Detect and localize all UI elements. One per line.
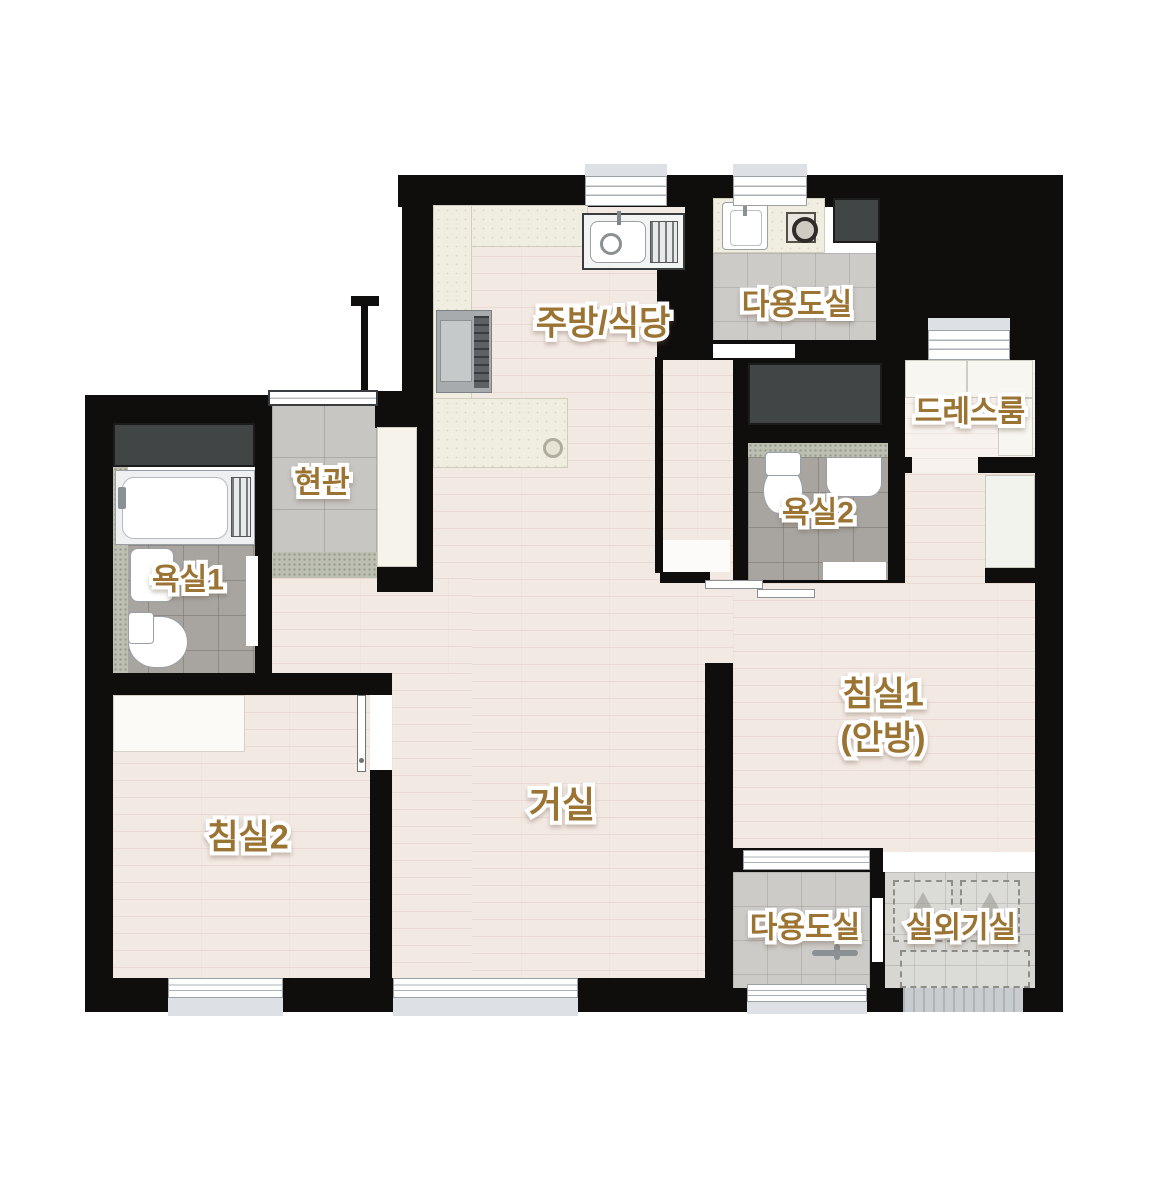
stove-grill [474,316,489,388]
kitchen-sink-drain-icon [600,233,622,255]
wall-utility-top-left-a [685,207,713,270]
kitchen-counter-lower [433,398,568,468]
closet-bedroom1 [985,475,1035,568]
closet-bedroom2 [113,695,245,752]
label-bathroom2: 욕실2 [782,497,854,530]
shoe-cabinet [377,427,417,567]
washer-drum-icon [792,217,818,243]
door-bathroom2-opening [823,562,886,580]
label-utility-top: 다용도실 [742,289,852,322]
label-entrance: 현관 [294,467,349,500]
label-bedroom1-line1: 침실1 [842,676,923,713]
stove-inner [440,320,472,382]
dark-panel-bathroom2-top [748,363,882,425]
window-bedroom1-utility [743,850,870,870]
bathroom2-sink [826,457,882,497]
wardrobe-dressroom-1 [905,360,967,398]
wall-corridor-thin [655,357,663,573]
wall-entrance-right-bottom [377,567,433,592]
window-living [393,978,578,998]
window-utility-bottom [747,984,867,1002]
label-bathroom1: 욕실1 [152,564,224,597]
kitchen-faucet-icon [617,211,621,225]
floor-plan: 주방/식당 다용도실 드레스룸 현관 욕실1 욕실2 침실1 (안방) 거실 침… [0,0,1160,1200]
wall-bedroom2-top [85,673,392,695]
wall-dressroom-bottom-b [978,457,1037,473]
floor-entrance-granite [272,552,377,578]
sill-dressroom-window [928,318,1010,330]
wardrobe-dressroom-2 [967,360,1033,398]
wall-bedroom2-right [370,770,392,978]
window-kitchen [585,176,667,206]
wall-left [85,395,113,1012]
kitchen-dish-rack [650,221,678,263]
sill-living-window [393,998,578,1016]
sill-kitchen-window [585,164,667,176]
ac-dashed-zone [900,950,1030,988]
label-kitchen-dining: 주방/식당 [536,305,671,342]
window-utility-top [733,176,807,206]
wall-entry-post [361,298,368,393]
floor-hall-upper [272,578,472,673]
sliding-door-bedroom1-a [705,580,763,589]
wall-dressroom-bottom-a [900,457,912,473]
label-bedroom1-line2: (안방) [840,720,925,757]
label-living: 거실 [529,785,595,825]
door-bathroom1-opening [246,556,258,646]
door-ac-room-opening [872,898,883,962]
floor-drain-icon [543,438,563,458]
wall-living-bedroom1 [705,663,733,1012]
bathtub-basin [122,477,228,539]
wall-closet-stub [985,568,1037,583]
door-bedroom2-handle-icon [359,758,364,763]
bathtub-faucet-icon [118,487,126,509]
window-dressroom [928,330,1010,360]
entrance-door [268,390,378,406]
window-bedroom2 [168,978,283,998]
dark-panel-utility-top [833,198,880,243]
floor-bedroom1 [733,583,1035,852]
label-utility-bottom: 다용도실 [750,912,860,945]
utility-faucet-stem-icon [834,944,840,960]
bathroom2-toilet-tank [765,452,801,476]
louver-ac-room [903,988,1023,1012]
wall-entrance-right-top [375,391,405,428]
sill-bedroom2-window [168,998,283,1016]
label-ac-room: 실외기실 [906,912,1016,945]
label-bedroom2: 침실2 [207,819,288,856]
wall-bathroom1-top [85,395,272,423]
wall-right [1035,360,1063,1012]
sliding-door-bedroom1-b [757,589,815,598]
label-dressroom: 드레스룸 [915,396,1025,429]
bathtub-shelf [231,477,251,537]
floor-hall-lower [392,673,472,980]
sill-utility-window [733,164,807,176]
sill-utility-bottom-window [747,1002,867,1014]
dark-panel-bathroom1-window-box [113,423,255,467]
bathroom1-toilet-tank [128,612,154,644]
wall-entry-post-cap [351,296,379,306]
door-utility-top-opening [713,344,795,358]
door-dressroom-opening [912,458,978,473]
threshold-bedroom1 [663,540,730,572]
